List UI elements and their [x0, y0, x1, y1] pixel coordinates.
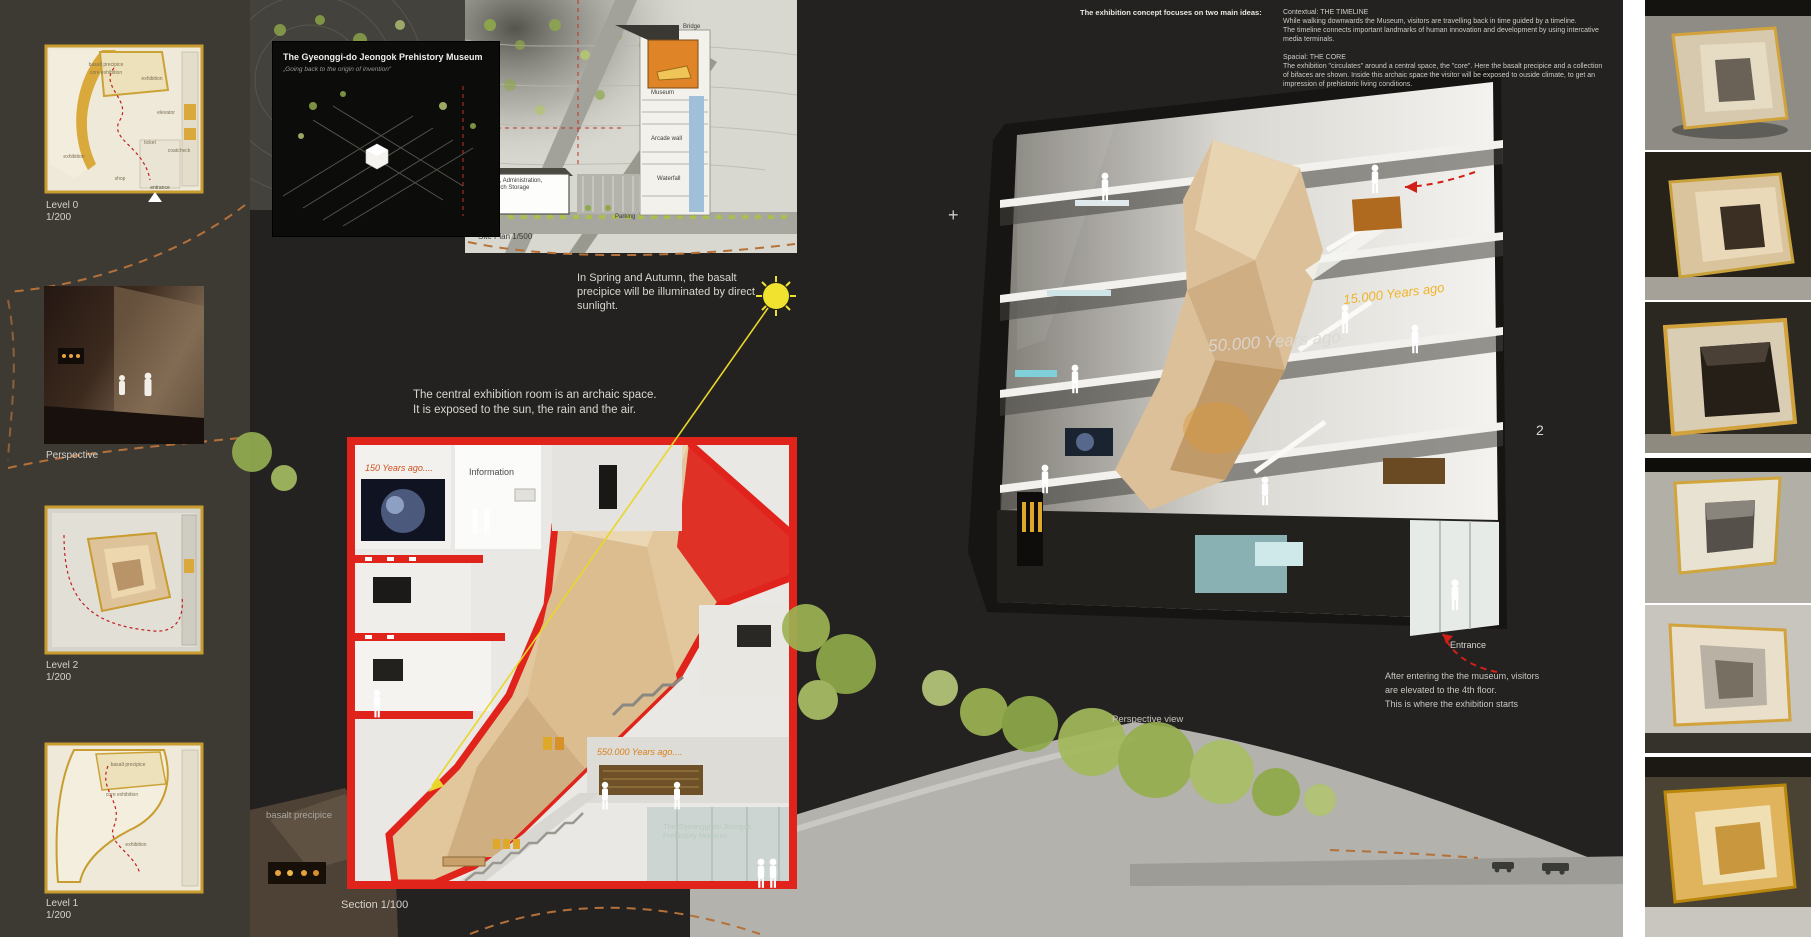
core-annotation: The central exhibition room is an archai… [413, 388, 753, 418]
page-number: 2 [1536, 422, 1544, 438]
concept-heading: The exhibition concept focuses on two ma… [1080, 8, 1262, 17]
concept-contextual-title: Contextual: THE TIMELINE [1283, 8, 1635, 17]
model-photo-1 [1645, 0, 1811, 150]
entrance-note: After entering the the museum, visitors … [1385, 669, 1615, 711]
sun-annotation: In Spring and Autumn, the basalt precipi… [577, 271, 759, 313]
presentation-board: basalt precipice core exhibition exhibit… [0, 0, 1811, 937]
entrance-label: Entrance [1450, 640, 1486, 650]
model-photo-column [1645, 0, 1811, 937]
model-photo-6 [1645, 757, 1811, 937]
concept-spacial-title: Spacial: THE CORE [1283, 53, 1635, 62]
museum-cutaway-render: 50.000 Years ago 15.000 Years ago Entran… [955, 40, 1540, 740]
model-photo-3 [1645, 302, 1811, 453]
model-photo-4 [1645, 458, 1811, 603]
white-divider [1623, 0, 1645, 937]
model-photo-5 [1645, 605, 1811, 753]
perspective-caption: Perspective view [1112, 714, 1183, 725]
model-photo-2 [1645, 152, 1811, 300]
concept-body: Contextual: THE TIMELINE While walking d… [1283, 8, 1635, 89]
crosshair-marker: + [948, 205, 959, 226]
